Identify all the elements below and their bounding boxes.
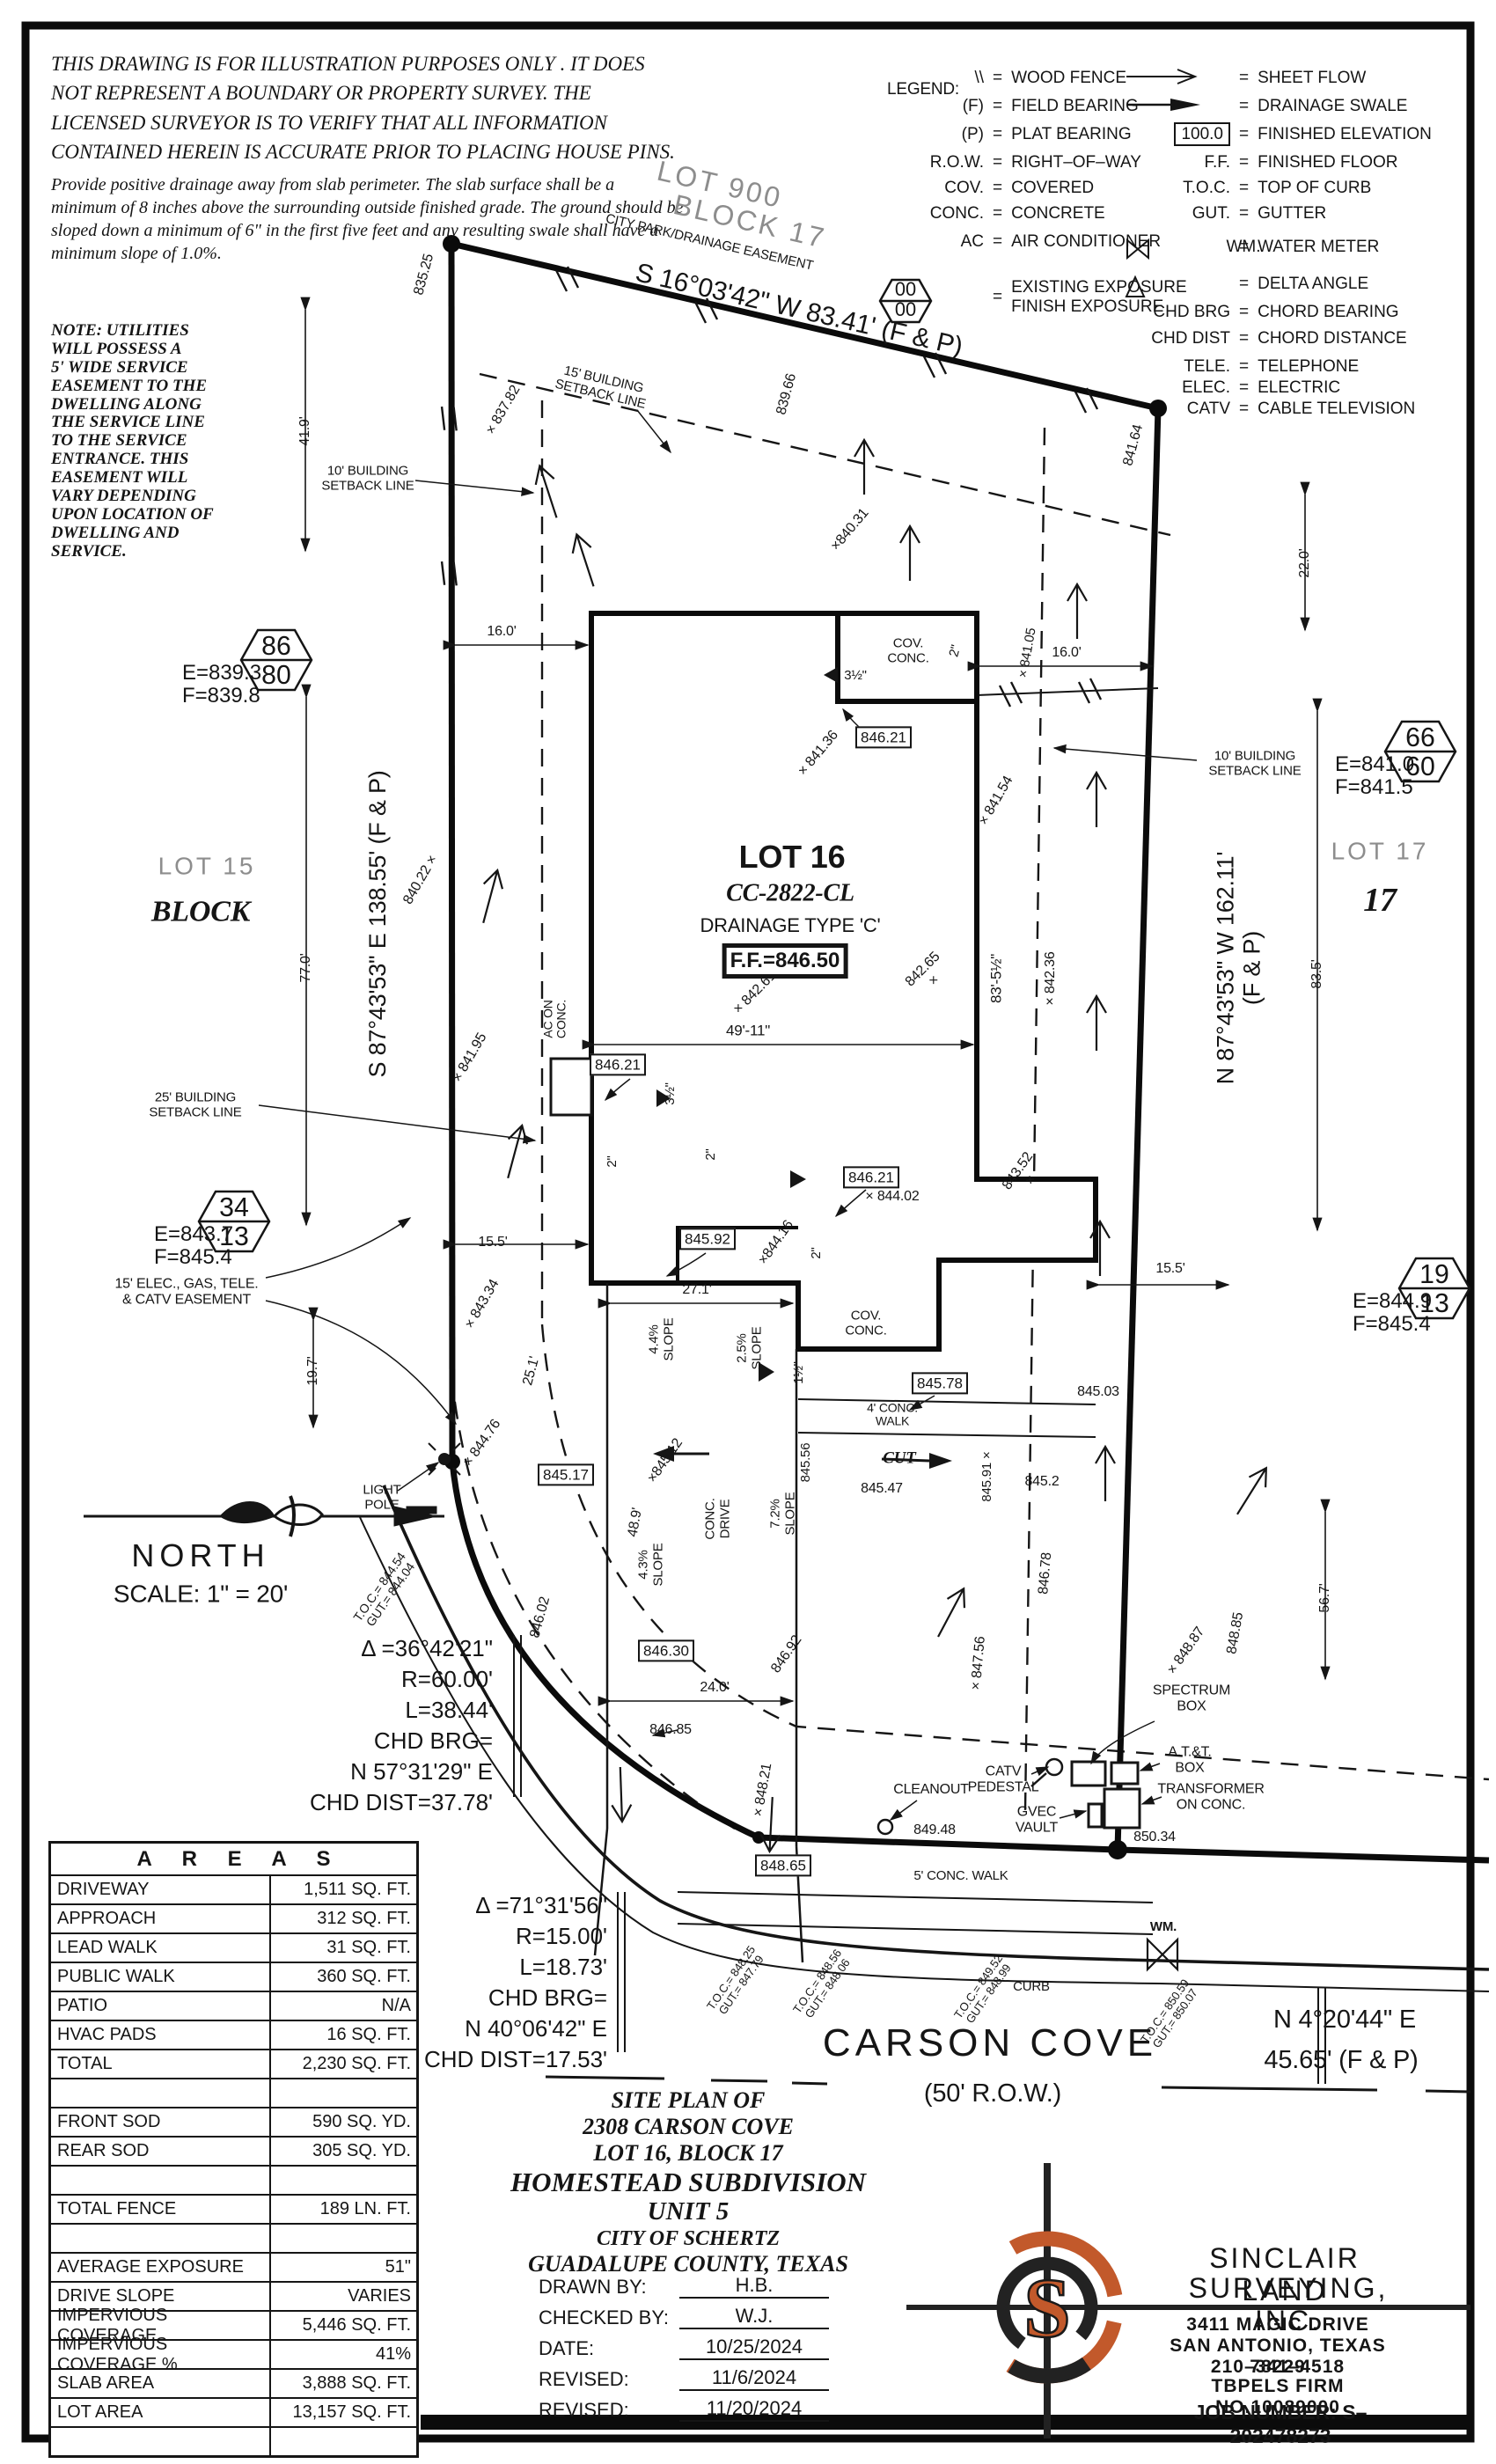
areas-row-value: 41% — [271, 2344, 416, 2365]
firm-address-1: 3411 MAGIC DRIVE — [1186, 2314, 1368, 2336]
sign-value: W.J. — [679, 2305, 829, 2329]
utility-boxes — [1072, 1762, 1140, 1828]
title-block-line: SITE PLAN OF — [380, 2087, 996, 2114]
plan-label: N 4°20'44" E — [1273, 2006, 1416, 2035]
areas-row-label: AVERAGE EXPOSURE — [51, 2254, 271, 2281]
areas-row: PATIO N/A — [51, 1992, 416, 2021]
title-block-line: CITY OF SCHERTZ — [380, 2227, 996, 2252]
areas-row: FRONT SOD 590 SQ. YD. — [51, 2108, 416, 2138]
areas-row: SLAB AREA 3,888 SQ. FT. — [51, 2370, 416, 2399]
legend-row: WM. = WATER METER — [1125, 238, 1379, 257]
plan-label: LIGHT POLE — [363, 1484, 400, 1513]
title-block-line: UNIT 5 — [380, 2197, 996, 2226]
legend-symbol: T.O.C. — [1125, 179, 1230, 198]
plan-label: 56.7' — [1317, 1583, 1333, 1612]
legend-row: = DELTA ANGLE — [1125, 275, 1495, 294]
plan-label: 845.56 — [799, 1443, 814, 1483]
legend-symbol: CONC. — [878, 204, 984, 224]
plan-label: N 87°43'53" W 162.11' (F & P) — [1213, 840, 1265, 1096]
sign-row: CHECKED BY: W.J. — [539, 2305, 829, 2329]
firm-phone: 210–341–4518 — [1211, 2357, 1345, 2378]
areas-row-label: FRONT SOD — [51, 2108, 271, 2136]
boxed-elevation: 845.78 — [912, 1372, 968, 1394]
cleanout-symbol — [878, 1820, 892, 1834]
plan-label: 849.48 — [913, 1822, 956, 1838]
title-block-line: LOT 16, BLOCK 17 — [380, 2140, 996, 2167]
legend-symbol: (P) — [878, 125, 984, 144]
legend-row: CHD DIST = CHORD DISTANCE — [1125, 329, 1495, 348]
plan-label: BLOCK — [151, 895, 250, 928]
legend-row: 100.0 = FINISHED ELEVATION — [1125, 125, 1432, 144]
areas-row-value: N/A — [271, 1996, 416, 2016]
svg-text:86: 86 — [261, 632, 291, 661]
plan-label: 41.9' — [297, 416, 313, 445]
disclaimer-main: THIS DRAWING IS FOR ILLUSTRATION PURPOSE… — [51, 49, 737, 166]
legend-symbol: (F) — [878, 97, 984, 116]
areas-table-title: A R E A S — [51, 1844, 416, 1876]
sign-value: 11/20/2024 — [679, 2397, 829, 2422]
legend-label: CABLE TELEVISION — [1258, 400, 1495, 419]
catv-pedestal-symbol — [1046, 1759, 1062, 1775]
legend-symbol: R.O.W. — [878, 153, 984, 172]
sign-label: REVISED: — [539, 2368, 679, 2391]
areas-row-label: TOTAL — [51, 2050, 271, 2078]
legend-row: CHD BRG = CHORD BEARING — [1125, 303, 1495, 322]
legend-row: = SHEET FLOW — [1125, 69, 1495, 88]
areas-row-value: 2,230 SQ. FT. — [271, 2054, 416, 2074]
plan-label: DRAINAGE TYPE 'C' — [700, 915, 880, 936]
sign-label: REVISED: — [539, 2399, 679, 2422]
legend-symbol: F.F. — [1125, 153, 1230, 172]
areas-row-value: 13,157 SQ. FT. — [271, 2402, 416, 2423]
areas-row-label — [51, 2167, 271, 2194]
exposure-values: E=841.0 F=841.5 — [1335, 753, 1414, 800]
plan-label: LOT 15 — [158, 854, 256, 881]
legend-label: CHORD BEARING — [1258, 303, 1495, 322]
plan-label: 15.5' — [1155, 1261, 1184, 1277]
legend-label: FINISHED ELEVATION — [1258, 125, 1432, 144]
plan-label: CLEANOUT — [893, 1782, 969, 1798]
logo-letter-s: S — [1023, 2261, 1070, 2355]
legend-row: GUT. = GUTTER — [1125, 204, 1495, 224]
areas-row: TOTAL FENCE 189 LN. FT. — [51, 2196, 416, 2225]
plan-label: A.T.&T. BOX — [1168, 1744, 1211, 1775]
plan-label: 27.1' — [682, 1282, 711, 1298]
legend-label: CHORD DISTANCE — [1258, 329, 1495, 348]
areas-row-label — [51, 2079, 271, 2107]
areas-row-value: 312 SQ. FT. — [271, 1909, 416, 1929]
legend-label: ELECTRIC — [1258, 378, 1495, 398]
legend-symbol: 100.0 — [1125, 125, 1230, 144]
areas-row-label — [51, 2428, 271, 2455]
areas-row: PUBLIC WALK 360 SQ. FT. — [51, 1963, 416, 1992]
areas-row-label: SLAB AREA — [51, 2370, 271, 2397]
svg-text:34: 34 — [219, 1193, 249, 1222]
boxed-elevation: 846.30 — [638, 1639, 694, 1661]
legend-row: TELE. = TELEPHONE — [1125, 357, 1495, 377]
plan-label: 22.0' — [1297, 548, 1313, 577]
plan-label: CC-2822-CL — [726, 881, 854, 908]
plan-label: 2" — [605, 1155, 620, 1167]
sign-row: DATE: 10/25/2024 — [539, 2336, 829, 2360]
areas-row-value: 3,888 SQ. FT. — [271, 2373, 416, 2394]
areas-table-rows: DRIVEWAY 1,511 SQ. FT.APPROACH 312 SQ. F… — [51, 1876, 416, 2455]
areas-row-label: PATIO — [51, 1992, 271, 2020]
plan-label: 846.85 — [649, 1722, 692, 1738]
areas-row — [51, 2079, 416, 2108]
plan-label: 7.2% SLOPE — [769, 1492, 798, 1535]
sign-label: DRAWN BY: — [539, 2276, 679, 2299]
plan-label: 19.7' — [305, 1356, 321, 1385]
sign-value: 11/6/2024 — [679, 2366, 829, 2391]
plan-label: 2.5% SLOPE — [736, 1326, 765, 1369]
plan-label: 4' CONC. WALK — [867, 1402, 918, 1429]
areas-row-label: DRIVEWAY — [51, 1876, 271, 1903]
svg-text:80: 80 — [261, 661, 291, 690]
boxed-elevation: 845.17 — [538, 1463, 594, 1485]
areas-row-value: VARIES — [271, 2286, 416, 2306]
plan-label: 17 — [1363, 883, 1397, 920]
plan-label: 845.03 — [1077, 1384, 1119, 1400]
boxed-elevation: 846.21 — [855, 726, 912, 748]
plan-label: 2" — [704, 1148, 719, 1160]
areas-row: TOTAL 2,230 SQ. FT. — [51, 2050, 416, 2079]
scale-label: SCALE: 1" = 20' — [114, 1581, 288, 1609]
areas-row-label: TOTAL FENCE — [51, 2196, 271, 2223]
legend-symbol: WM. — [1125, 238, 1230, 257]
areas-row-label: REAR SOD — [51, 2138, 271, 2165]
boxed-elevation: F.F.=846.50 — [722, 943, 848, 979]
plan-label: 24.0' — [700, 1680, 729, 1696]
legend-symbol: \\ — [878, 69, 984, 88]
plan-label: 49'-11" — [726, 1023, 770, 1040]
areas-row: AVERAGE EXPOSURE 51" — [51, 2254, 416, 2283]
plan-label: 83'-5½" — [989, 954, 1006, 1003]
legend-row: ELEC. = ELECTRIC — [1125, 378, 1495, 398]
legend-symbol: GUT. — [1125, 204, 1230, 224]
legend-symbol: AC — [878, 232, 984, 252]
plan-label: 5' CONC. WALK — [913, 1869, 1008, 1884]
boxed-elevation: 845.92 — [679, 1228, 736, 1250]
sign-row: DRAWN BY: H.B. — [539, 2274, 829, 2299]
areas-row — [51, 2167, 416, 2196]
areas-row-label — [51, 2225, 271, 2252]
legend-symbol: CATV — [1125, 400, 1230, 419]
plan-label: 4.4% SLOPE — [648, 1317, 677, 1360]
svg-text:66: 66 — [1405, 723, 1435, 752]
job-number: JOB NUMBER: S–202478273 — [1173, 2401, 1389, 2448]
plan-label: 845.91 × — [980, 1451, 995, 1501]
plan-label: 1½" — [792, 1361, 807, 1384]
plan-label: COV. CONC. — [845, 1309, 886, 1338]
boxed-elevation: 846.21 — [590, 1053, 646, 1075]
areas-row — [51, 2428, 416, 2455]
plan-label: 3½" — [844, 669, 867, 684]
title-block: SITE PLAN OF2308 CARSON COVELOT 16, BLOC… — [380, 2087, 996, 2277]
areas-row: IMPERVIOUS COVERAGE % 41% — [51, 2341, 416, 2370]
plan-label: TRANSFORMER ON CONC. — [1157, 1781, 1264, 1812]
areas-row: DRIVEWAY 1,511 SQ. FT. — [51, 1876, 416, 1905]
plan-label: S 87°43'53" E 138.55' (F & P) — [365, 770, 392, 1077]
sign-label: CHECKED BY: — [539, 2306, 679, 2329]
house-footprint — [551, 613, 1096, 1382]
areas-row — [51, 2225, 416, 2254]
legend-label: DRAINAGE SWALE — [1258, 97, 1495, 116]
boxed-elevation: 848.65 — [755, 1854, 811, 1876]
utilities-note: NOTE: UTILITIES WILL POSSESS A 5' WIDE S… — [51, 322, 271, 561]
title-block-line: 2308 CARSON COVE — [380, 2114, 996, 2140]
ac-pad — [551, 1059, 591, 1115]
curve-data-1: Δ =36°42'21" R=60.00' L=38.44' CHD BRG= … — [220, 1633, 493, 1819]
sign-value: H.B. — [679, 2274, 829, 2299]
plan-label: 16.0' — [487, 624, 516, 640]
legend-label: SHEET FLOW — [1258, 69, 1495, 88]
walks — [678, 1399, 1153, 1934]
site-plan-sheet: S THIS DRAWING IS FOR ILLUSTRATION PURPO… — [0, 0, 1496, 2464]
legend-label: DELTA ANGLE — [1258, 275, 1495, 294]
areas-row: LEAD WALK 31 SQ. FT. — [51, 1934, 416, 1963]
plan-label: CONC. DRIVE — [704, 1498, 733, 1539]
sign-row: REVISED: 11/20/2024 — [539, 2397, 829, 2422]
plan-label: WM. — [1150, 1920, 1177, 1935]
legend-label: TELEPHONE — [1258, 357, 1495, 377]
exposure-values: E=844.9 F=845.4 — [1353, 1290, 1432, 1337]
plan-label: 4.3% SLOPE — [637, 1543, 666, 1586]
svg-text:19: 19 — [1419, 1260, 1449, 1289]
legend-label: WATER METER — [1258, 238, 1379, 257]
areas-row-value: 360 SQ. FT. — [271, 1967, 416, 1987]
water-meter-symbol — [1148, 1940, 1177, 1969]
plan-label: LOT 16 — [739, 840, 846, 875]
signature-block: DRAWN BY: H.B.CHECKED BY: W.J.DATE: 10/2… — [539, 2274, 829, 2428]
areas-row-label: IMPERVIOUS COVERAGE % — [51, 2341, 271, 2368]
areas-row-value: 16 SQ. FT. — [271, 2025, 416, 2045]
plan-label: 10' BUILDING SETBACK LINE — [321, 465, 414, 494]
areas-row: REAR SOD 305 SQ. YD. — [51, 2138, 416, 2167]
sign-label: DATE: — [539, 2337, 679, 2360]
legend-row: T.O.C. = TOP OF CURB — [1125, 179, 1495, 198]
plan-label: GVEC VAULT — [1016, 1804, 1058, 1835]
plan-label: 10' BUILDING SETBACK LINE — [1208, 750, 1301, 779]
legend-row: F.F. = FINISHED FLOOR — [1125, 153, 1495, 172]
areas-row-label: APPROACH — [51, 1905, 271, 1932]
plan-label: 850.34 — [1133, 1830, 1176, 1845]
legend-symbol: COV. — [878, 179, 984, 198]
street-name: CARSON COVE — [823, 2022, 1157, 2064]
areas-row: HVAC PADS 16 SQ. FT. — [51, 2021, 416, 2050]
legend-row: = DRAINAGE SWALE — [1125, 97, 1495, 116]
sign-value: 10/25/2024 — [679, 2336, 829, 2360]
legend-symbol: ELEC. — [1125, 378, 1230, 398]
areas-row-value: 31 SQ. FT. — [271, 1938, 416, 1958]
areas-table: A R E A S DRIVEWAY 1,511 SQ. FT.APPROACH… — [48, 1841, 419, 2458]
areas-row-value: 5,446 SQ. FT. — [271, 2315, 416, 2336]
exposure-values: E=843.7 F=845.4 — [154, 1223, 233, 1270]
sign-row: REVISED: 11/6/2024 — [539, 2366, 829, 2391]
plan-label: × 842.36 — [1043, 951, 1059, 1005]
plan-label: 845.47 — [861, 1481, 903, 1497]
areas-row-label: PUBLIC WALK — [51, 1963, 271, 1991]
svg-text:00: 00 — [895, 278, 916, 300]
legend-symbol: CHD BRG — [1125, 303, 1230, 322]
plan-label: SPECTRUM BOX — [1153, 1683, 1230, 1713]
plan-label: CUT — [883, 1450, 915, 1469]
plan-label: AC ON CONC. — [542, 1000, 569, 1038]
legend-label: FINISHED FLOOR — [1258, 153, 1495, 172]
plan-label: 16.0' — [1052, 645, 1081, 661]
plan-label: 15' ELEC., GAS, TELE. & CATV EASEMENT — [114, 1276, 258, 1307]
title-block-line: HOMESTEAD SUBDIVISION — [380, 2167, 996, 2198]
plan-label: 3½" — [664, 1082, 678, 1105]
north-label: NORTH — [131, 1538, 269, 1573]
areas-row: LOT AREA 13,157 SQ. FT. — [51, 2399, 416, 2428]
plan-label: 25' BUILDING SETBACK LINE — [149, 1091, 241, 1120]
plan-label: × 844.02 — [865, 1189, 919, 1205]
legend-symbol: CHD DIST — [1125, 329, 1230, 348]
plan-label: 83.5' — [1309, 959, 1325, 988]
boxed-elevation: 846.21 — [843, 1166, 899, 1188]
areas-row-value: 1,511 SQ. FT. — [271, 1880, 416, 1900]
exposure-values: E=839.3 F=839.8 — [182, 662, 261, 708]
plan-label: 845.2 — [1024, 1474, 1059, 1490]
plan-label: CURB — [1013, 1980, 1050, 1995]
plan-label: 2" — [810, 1247, 825, 1258]
legend-symbol: TELE. — [1125, 357, 1230, 377]
plan-label: 15.5' — [478, 1235, 507, 1250]
plan-label: LOT 17 — [1331, 839, 1429, 866]
plan-label: 45.65' (F & P) — [1264, 2047, 1418, 2075]
plan-label: CATV PEDESTAL — [968, 1764, 1039, 1794]
areas-row-label: HVAC PADS — [51, 2021, 271, 2049]
areas-row: APPROACH 312 SQ. FT. — [51, 1905, 416, 1934]
plan-label: COV. CONC. — [887, 637, 928, 666]
areas-row-label: LOT AREA — [51, 2399, 271, 2426]
legend-label: TOP OF CURB — [1258, 179, 1495, 198]
legend-row: CATV = CABLE TELEVISION — [1125, 400, 1495, 419]
areas-row-label: LEAD WALK — [51, 1934, 271, 1962]
legend-label: GUTTER — [1258, 204, 1495, 224]
plan-label: 77.0' — [298, 953, 314, 982]
